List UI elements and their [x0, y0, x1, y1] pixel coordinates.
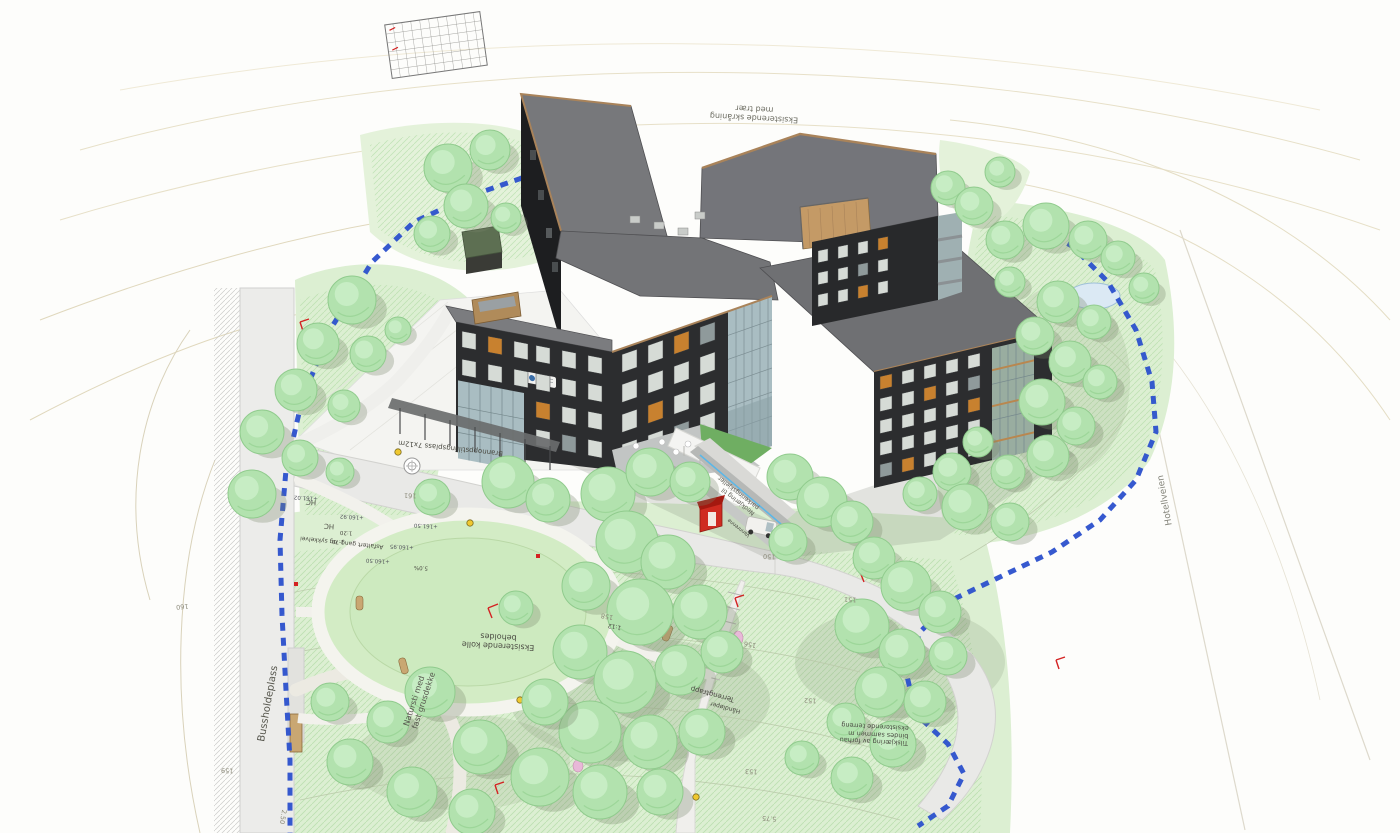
spot-elevation: +161.02 — [294, 493, 318, 501]
window — [562, 350, 576, 369]
window — [902, 391, 914, 407]
window — [858, 285, 868, 299]
window — [488, 336, 502, 355]
window — [588, 383, 602, 402]
window — [838, 289, 848, 303]
label-slope-ratio-2: 1:20 — [340, 529, 353, 536]
window — [946, 380, 958, 396]
window — [946, 424, 958, 440]
window — [902, 369, 914, 385]
contour-label: 158 — [600, 611, 614, 621]
spot-elevation: +160.95 — [390, 542, 414, 550]
core-roof — [556, 231, 778, 300]
solar-array-structure — [385, 12, 488, 79]
ne-balcony-glass — [938, 212, 962, 300]
window — [588, 355, 602, 374]
label-knoll: Eksisterende kolle beholdes — [462, 630, 535, 652]
window — [562, 406, 576, 425]
window — [818, 271, 828, 285]
window — [514, 341, 528, 360]
window — [924, 429, 936, 445]
bus-road — [240, 288, 294, 833]
window — [588, 411, 602, 430]
window — [536, 401, 550, 420]
spot-elevation: +160.92 — [340, 512, 364, 520]
contour-label: 5.75 — [762, 814, 777, 822]
window — [488, 364, 502, 383]
window — [880, 396, 892, 412]
window — [462, 359, 476, 378]
window — [858, 263, 868, 277]
contour-label: 156 — [743, 639, 757, 649]
window — [818, 293, 828, 307]
window — [878, 280, 888, 294]
window — [462, 331, 476, 350]
garden-shed — [462, 226, 502, 274]
window — [924, 385, 936, 401]
spot-elevation: +161.50 — [414, 521, 438, 529]
window — [880, 374, 892, 390]
window — [514, 369, 528, 388]
contour-label: 2.50 — [277, 809, 287, 825]
label-slope-ratio-1: 1:12 — [608, 621, 622, 630]
window — [588, 439, 602, 458]
window — [878, 258, 888, 272]
contour-label: 150 — [763, 552, 776, 560]
contour-label: 159 — [221, 766, 234, 774]
label-hc-2: HC — [324, 522, 335, 531]
contour-label: 160 — [176, 601, 189, 610]
window — [924, 407, 936, 423]
window — [902, 457, 914, 473]
label-cut-note: Tilskjæring av forhau bindes sammen m ek… — [839, 720, 909, 746]
window — [858, 241, 868, 255]
window — [818, 249, 828, 263]
label-dim-1: 1.70 — [332, 538, 345, 545]
window — [880, 418, 892, 434]
contour-label: 152 — [804, 696, 817, 704]
window — [946, 358, 958, 374]
site-plan-scene — [0, 0, 1400, 833]
window — [924, 363, 936, 379]
window — [838, 267, 848, 281]
window — [902, 413, 914, 429]
window — [902, 435, 914, 451]
window — [968, 375, 980, 391]
window — [946, 402, 958, 418]
window — [536, 373, 550, 392]
window — [536, 345, 550, 364]
site-plan-rendering: Eksisterende skråning med trær Brannopps… — [0, 0, 1400, 833]
spot-elevation: +160.50 — [366, 556, 390, 564]
window — [968, 397, 980, 413]
contour-label: 151 — [844, 595, 857, 603]
manhole — [404, 458, 420, 474]
window — [562, 434, 576, 453]
window — [968, 353, 980, 369]
window — [878, 236, 888, 250]
window — [880, 440, 892, 456]
contour-label: 161 — [404, 491, 417, 499]
contour-label: 153 — [745, 767, 758, 775]
window — [562, 378, 576, 397]
window — [838, 245, 848, 259]
road-shoulder-hatch — [214, 288, 242, 833]
label-grade: 5.0% — [414, 564, 428, 571]
window — [880, 462, 892, 478]
